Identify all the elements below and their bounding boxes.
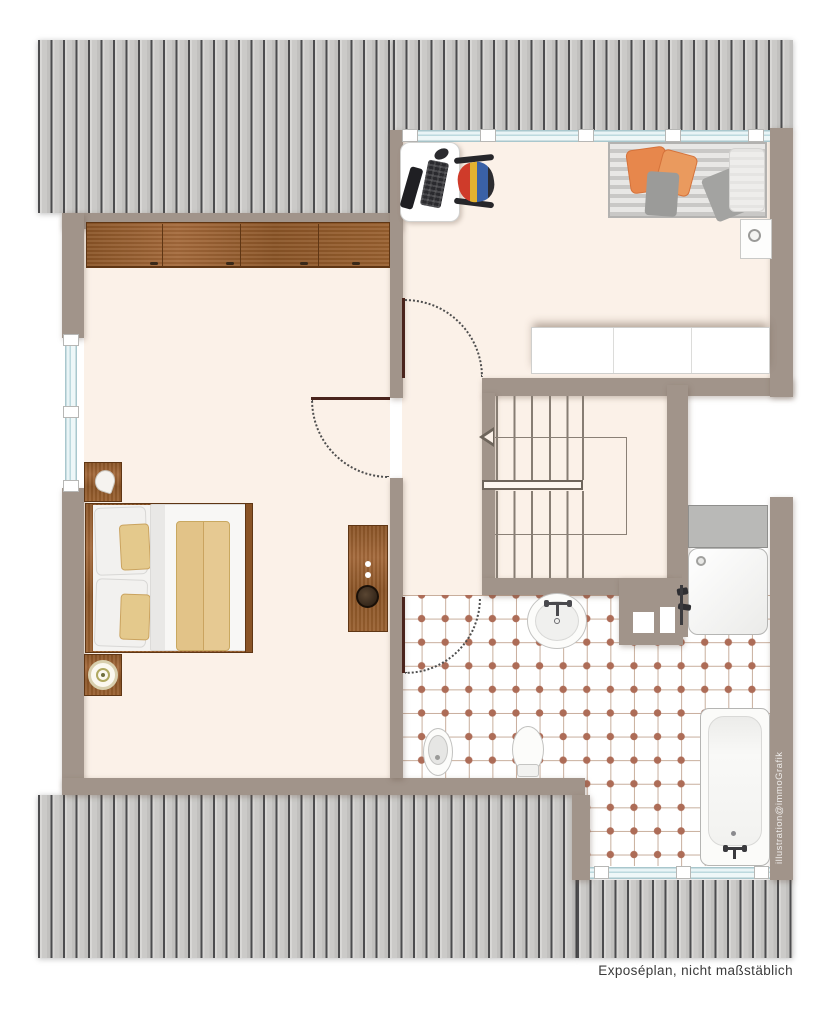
wardrobe-divider xyxy=(162,224,163,266)
corridor-floor xyxy=(402,378,482,595)
white-pillow xyxy=(729,148,765,212)
dresser-knob xyxy=(365,572,371,578)
sideboard xyxy=(531,327,770,374)
sideboard-divider xyxy=(613,328,614,373)
window-mullion xyxy=(63,480,79,492)
bathtub-overflow xyxy=(731,831,736,836)
roof-hatch-bottom-right xyxy=(577,880,793,958)
footer-note: Exposéplan, nicht maßstäblich xyxy=(400,963,793,978)
bathtub-spout xyxy=(733,850,736,859)
window-mullion xyxy=(63,334,79,346)
window-mullion xyxy=(402,129,418,142)
wall-shaft-opening-2 xyxy=(660,607,675,633)
bidet-drain xyxy=(435,755,440,760)
roof-hatch-top-right xyxy=(393,40,793,130)
wardrobe-handle xyxy=(352,262,360,265)
wardrobe-divider xyxy=(240,224,241,266)
window-mullion xyxy=(754,866,769,879)
shower-fitting xyxy=(680,585,683,625)
window-mullion xyxy=(594,866,609,879)
stair-walking-line xyxy=(495,437,627,535)
office-chair xyxy=(452,154,502,210)
wall-bath-step xyxy=(572,795,590,880)
dresser-bowl xyxy=(356,585,379,608)
alarm-lamp-dot xyxy=(101,673,105,677)
window-mullion xyxy=(748,129,764,142)
dresser-knob xyxy=(365,561,371,567)
bathtub-faucet-handle xyxy=(723,845,728,852)
wardrobe-divider xyxy=(318,224,319,266)
washbasin-drain xyxy=(554,618,560,624)
bed-footboard xyxy=(245,503,253,653)
window-mullion xyxy=(480,129,496,142)
bidet-bowl xyxy=(428,735,448,765)
stair-direction-arrow-inner xyxy=(484,431,493,443)
window-mullion xyxy=(63,406,79,418)
window-mullion xyxy=(665,129,681,142)
window-mullion xyxy=(578,129,594,142)
bed-blanket xyxy=(176,521,230,651)
watermark: illustration@immoGrafik xyxy=(774,752,785,864)
wall-right-upper xyxy=(770,128,793,397)
accent-cushion xyxy=(119,593,151,640)
gray-cushion xyxy=(645,171,680,217)
wardrobe-handle xyxy=(226,262,234,265)
toilet-tank xyxy=(517,764,539,777)
shower-drain xyxy=(696,556,706,566)
wall-shaft-opening-1 xyxy=(633,612,654,633)
washbasin-faucet-handle xyxy=(544,600,549,607)
sideboard-divider xyxy=(691,328,692,373)
wall-bottom xyxy=(62,778,585,795)
washbasin-faucet-handle xyxy=(567,600,572,607)
dresser xyxy=(348,525,388,632)
wall-left-lower xyxy=(62,488,84,790)
wall-study-bottom xyxy=(482,378,793,396)
window-mullion xyxy=(676,866,691,879)
accent-cushion xyxy=(119,523,151,571)
roof-hatch-top-left xyxy=(38,40,393,213)
wardrobe xyxy=(86,222,390,268)
wardrobe-handle xyxy=(150,262,158,265)
wardrobe-handle xyxy=(300,262,308,265)
bathtub-basin xyxy=(708,716,762,846)
floorplan-canvas: illustration@immoGrafik Exposéplan, nich… xyxy=(0,0,832,1024)
roof-hatch-bottom-left xyxy=(38,795,577,958)
shower-shelf xyxy=(688,505,768,548)
washbasin-spout xyxy=(556,605,559,616)
wall-left-upper xyxy=(62,213,84,338)
bathtub-faucet-handle xyxy=(742,845,747,852)
